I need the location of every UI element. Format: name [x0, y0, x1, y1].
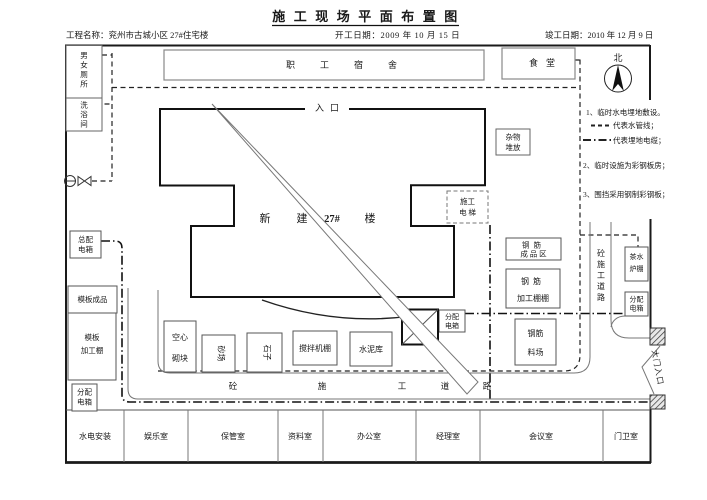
svg-text:模板成品: 模板成品 — [78, 294, 108, 304]
svg-text:女: 女 — [80, 60, 88, 70]
svg-text:堆放: 堆放 — [506, 142, 521, 152]
svg-text:钢筋: 钢筋 — [528, 328, 544, 338]
svg-text:代表埋地电缆；: 代表埋地电缆； — [613, 135, 666, 145]
svg-text:水泥库: 水泥库 — [359, 344, 383, 354]
svg-text:加工棚: 加工棚 — [81, 345, 104, 355]
svg-text:电箱: 电箱 — [77, 397, 92, 407]
svg-text:所: 所 — [80, 79, 88, 89]
svg-text:2、临时设施为彩钢板房；: 2、临时设施为彩钢板房； — [583, 160, 669, 170]
svg-text:杂物: 杂物 — [506, 132, 521, 142]
svg-text:炉棚: 炉棚 — [630, 264, 644, 273]
svg-text:路: 路 — [483, 381, 492, 391]
svg-text:竣工日期：2010 年 12 月 9 日: 竣工日期：2010 年 12 月 9 日 — [545, 30, 653, 40]
svg-text:分配: 分配 — [445, 312, 459, 321]
svg-text:搅拌机棚: 搅拌机棚 — [299, 343, 331, 353]
svg-text:入口: 入口 — [315, 103, 345, 113]
svg-text:建: 建 — [297, 211, 308, 225]
svg-text:电箱: 电箱 — [78, 244, 93, 254]
svg-text:施: 施 — [318, 381, 327, 391]
svg-text:空心: 空心 — [172, 332, 188, 342]
svg-text:石子: 石子 — [263, 345, 272, 361]
svg-text:经理室: 经理室 — [436, 431, 460, 441]
svg-text:施工现场平面布置图: 施工现场平面布置图 — [272, 9, 466, 24]
svg-text:厕: 厕 — [80, 70, 88, 79]
svg-text:加工棚棚: 加工棚棚 — [517, 293, 549, 303]
svg-text:开工日期：2009 年 10 月 15 日: 开工日期：2009 年 10 月 15 日 — [335, 30, 460, 40]
svg-text:楼: 楼 — [365, 211, 376, 225]
svg-text:钢筋: 钢筋 — [522, 240, 545, 250]
svg-text:娱乐室: 娱乐室 — [144, 431, 168, 441]
svg-text:电 梯: 电 梯 — [459, 207, 476, 217]
svg-text:3、围挡采用钢制彩钢板；: 3、围挡采用钢制彩钢板； — [583, 189, 669, 199]
svg-text:职工宿舍: 职工宿舍 — [286, 59, 422, 70]
svg-text:资料室: 资料室 — [288, 431, 312, 441]
svg-text:洗: 洗 — [80, 100, 88, 110]
svg-text:浴: 浴 — [80, 109, 88, 119]
svg-text:工: 工 — [398, 381, 407, 391]
svg-text:砼: 砼 — [229, 381, 238, 391]
svg-text:食堂: 食堂 — [529, 57, 563, 68]
svg-text:水电安装: 水电安装 — [79, 431, 111, 441]
svg-text:保管室: 保管室 — [221, 431, 245, 441]
svg-text:新: 新 — [260, 211, 271, 225]
svg-text:分配: 分配 — [630, 295, 644, 304]
svg-text:会议室: 会议室 — [529, 431, 553, 441]
svg-text:分配: 分配 — [77, 388, 92, 397]
svg-text:北: 北 — [613, 53, 622, 63]
svg-text:路: 路 — [597, 292, 605, 302]
svg-text:代表水管线；: 代表水管线； — [613, 120, 658, 130]
svg-text:电箱: 电箱 — [630, 304, 644, 313]
svg-text:道: 道 — [597, 281, 605, 291]
svg-text:成 品 区: 成 品 区 — [520, 249, 547, 259]
svg-text:砌块: 砌块 — [172, 353, 188, 363]
svg-text:门卫室: 门卫室 — [614, 431, 638, 441]
svg-text:施: 施 — [597, 259, 605, 269]
svg-text:电箱: 电箱 — [445, 321, 459, 330]
svg-text:茶水: 茶水 — [630, 252, 644, 261]
svg-text:1、临时水电埋地敷设。: 1、临时水电埋地敷设。 — [586, 107, 665, 117]
svg-text:道: 道 — [441, 381, 450, 391]
svg-text:砂场: 砂场 — [217, 346, 227, 362]
svg-text:施工: 施工 — [460, 196, 475, 206]
svg-text:模板: 模板 — [85, 332, 100, 342]
svg-text:钢筋: 钢筋 — [521, 276, 545, 286]
svg-text:办公室: 办公室 — [357, 431, 381, 441]
svg-text:男: 男 — [80, 51, 88, 60]
svg-text:总配: 总配 — [78, 234, 93, 244]
svg-text:间: 间 — [80, 120, 88, 129]
svg-text:料场: 料场 — [528, 347, 544, 357]
svg-text:工程名称：兖州市古城小区 27#住宅楼: 工程名称：兖州市古城小区 27#住宅楼 — [66, 30, 209, 40]
svg-text:砼: 砼 — [597, 248, 605, 258]
svg-text:工: 工 — [597, 271, 605, 280]
